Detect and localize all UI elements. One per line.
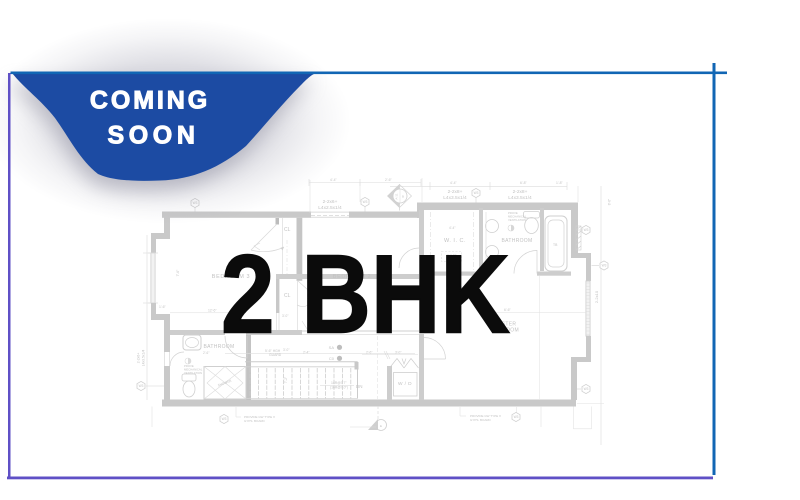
- svg-text:W3: W3: [222, 417, 227, 421]
- svg-text:B: B: [402, 195, 404, 199]
- svg-text:14R@7 7": 14R@7 7": [331, 381, 347, 385]
- svg-text:(16R@7.0"): (16R@7.0"): [330, 386, 348, 390]
- svg-text:4'-4": 4'-4": [330, 178, 338, 182]
- svg-text:2'-6": 2'-6": [385, 178, 393, 182]
- svg-text:C0: C0: [329, 356, 335, 361]
- svg-text:PROVIDE GW TYPE XGYPS. BOARD: PROVIDE GW TYPE XGYPS. BOARD: [470, 414, 501, 422]
- svg-text:2-2x6+: 2-2x6+: [137, 353, 141, 363]
- svg-text:4'-4": 4'-4": [450, 181, 458, 185]
- svg-text:4'-4": 4'-4": [449, 226, 455, 230]
- svg-text:1'-6": 1'-6": [159, 305, 167, 309]
- svg-text:DN: DN: [356, 384, 363, 389]
- svg-text:W3: W3: [139, 384, 144, 388]
- svg-text:W3: W3: [584, 387, 589, 391]
- svg-text:W / D: W / D: [398, 381, 412, 387]
- svg-text:2-2x6+L4x2.5x1/4: 2-2x6+L4x2.5x1/4: [318, 199, 342, 211]
- svg-text:A-11: A-11: [394, 193, 398, 199]
- svg-text:W3: W3: [363, 200, 368, 204]
- svg-text:COMING: COMING: [90, 87, 210, 115]
- svg-text:W3: W3: [584, 228, 589, 232]
- svg-text:7'-6": 7'-6": [176, 269, 180, 277]
- svg-text:W3: W3: [514, 415, 519, 419]
- svg-text:PROVIDE GW TYPE XGYPS. BOARD: PROVIDE GW TYPE XGYPS. BOARD: [244, 415, 275, 423]
- svg-text:2'-6": 2'-6": [203, 351, 209, 355]
- svg-text:W3: W3: [602, 264, 607, 268]
- svg-text:PROVEMECHANICALVENTILATION: PROVEMECHANICALVENTILATION: [184, 364, 203, 375]
- svg-text:1'-8": 1'-8": [556, 181, 564, 185]
- svg-text:TB: TB: [553, 243, 558, 247]
- svg-text:2-2x8+L4x3.5x1/4: 2-2x8+L4x3.5x1/4: [508, 189, 532, 201]
- svg-text:12'-6": 12'-6": [208, 309, 217, 313]
- svg-text:2 BHK: 2 BHK: [221, 233, 510, 357]
- svg-text:2-2x8+L4x3.5x1/4: 2-2x8+L4x3.5x1/4: [443, 189, 467, 201]
- svg-text:2-2x10: 2-2x10: [594, 290, 599, 303]
- svg-text:8'-6": 8'-6": [608, 199, 612, 205]
- svg-text:7'-2": 7'-2": [284, 377, 288, 383]
- svg-text:SHOWER: SHOWER: [217, 378, 233, 387]
- svg-text:W3: W3: [474, 191, 479, 195]
- svg-text:E: E: [380, 424, 382, 428]
- svg-text:L4x3.5x1/4: L4x3.5x1/4: [142, 350, 146, 367]
- svg-text:6'-8": 6'-8": [520, 181, 528, 185]
- svg-text:SOON: SOON: [107, 122, 199, 150]
